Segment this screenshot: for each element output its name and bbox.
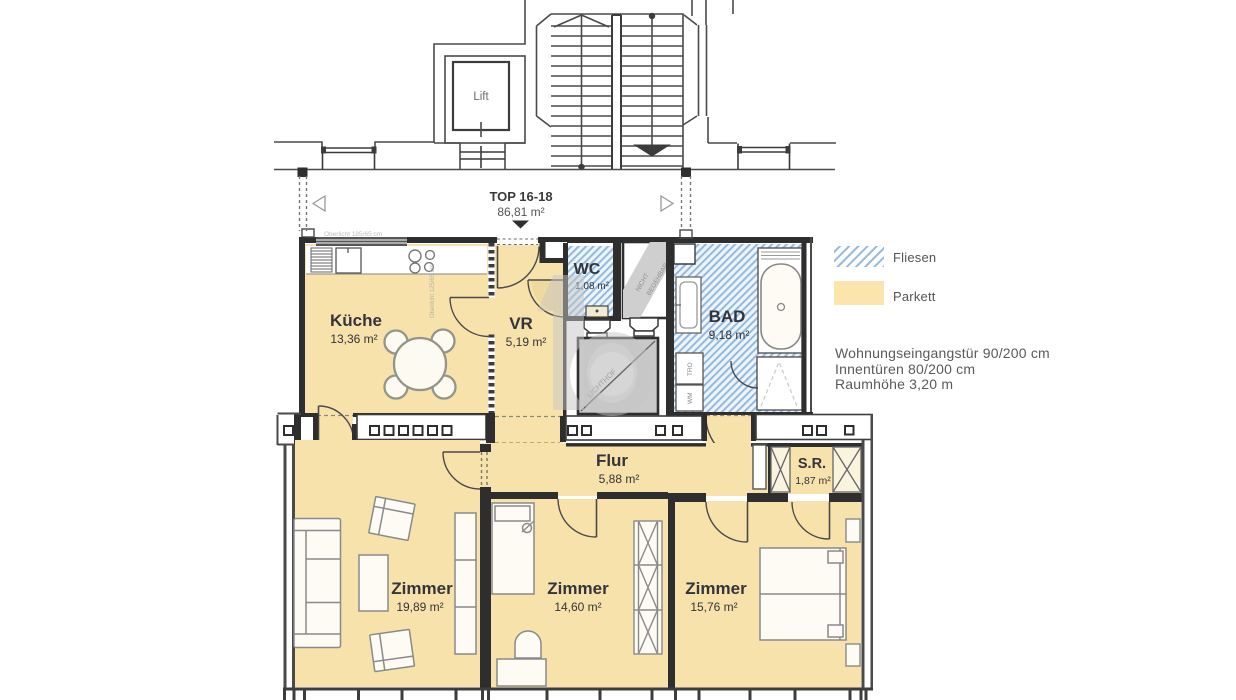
svg-text:TRO: TRO <box>687 362 694 376</box>
svg-text:Lift: Lift <box>473 91 489 103</box>
svg-text:WM: WM <box>687 392 694 404</box>
svg-text:1,87 m²: 1,87 m² <box>795 475 831 487</box>
svg-text:Küche: Küche <box>330 311 382 330</box>
svg-text:S.R.: S.R. <box>798 456 826 472</box>
svg-text:Oberlicht 125/65 cm: Oberlicht 125/65 cm <box>430 264 436 318</box>
svg-text:14,60 m²: 14,60 m² <box>554 600 601 614</box>
svg-text:Fliesen: Fliesen <box>893 250 936 265</box>
svg-text:Innentüren 80/200 cm: Innentüren 80/200 cm <box>835 361 975 377</box>
svg-text:Zimmer: Zimmer <box>547 579 609 598</box>
svg-text:86,81 m²: 86,81 m² <box>497 205 544 219</box>
svg-text:Raumhöhe 3,20 m: Raumhöhe 3,20 m <box>835 376 953 392</box>
svg-text:Oberlicht 185/65 cm: Oberlicht 185/65 cm <box>324 231 382 238</box>
svg-text:5,88 m²: 5,88 m² <box>599 472 640 486</box>
svg-text:Wohnungseingangstür 90/200 cm: Wohnungseingangstür 90/200 cm <box>835 345 1050 361</box>
svg-text:19,89 m²: 19,89 m² <box>396 600 443 614</box>
svg-text:Zimmer: Zimmer <box>685 579 747 598</box>
svg-text:VR: VR <box>509 314 533 333</box>
svg-text:BAD: BAD <box>709 307 746 326</box>
svg-text:Flur: Flur <box>596 451 628 470</box>
svg-text:13,36 m²: 13,36 m² <box>330 332 377 346</box>
svg-text:15,76 m²: 15,76 m² <box>690 600 737 614</box>
svg-text:Parkett: Parkett <box>893 289 936 304</box>
svg-text:9,18 m²: 9,18 m² <box>709 328 750 342</box>
svg-text:TOP 16-18: TOP 16-18 <box>489 189 552 204</box>
svg-text:5,19 m²: 5,19 m² <box>506 335 547 349</box>
svg-text:Zimmer: Zimmer <box>391 579 453 598</box>
